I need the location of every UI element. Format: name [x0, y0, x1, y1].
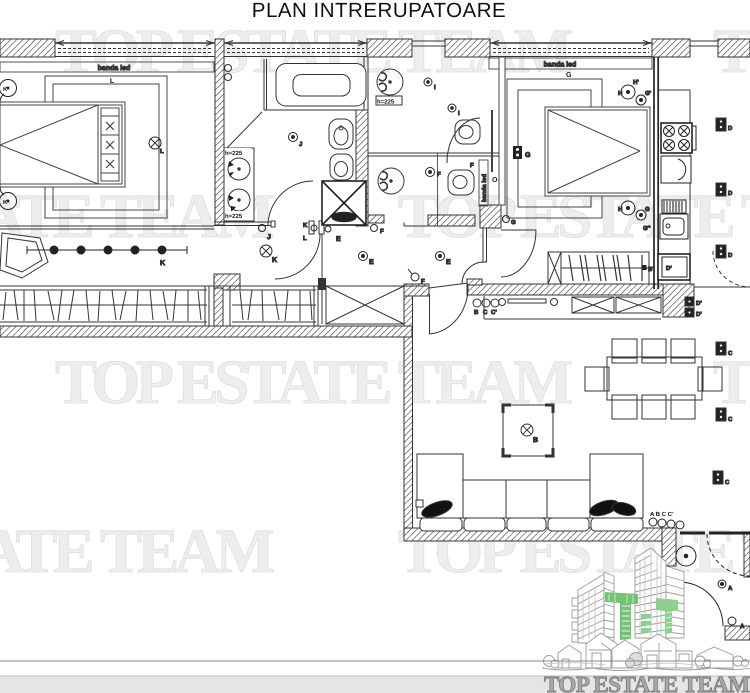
svg-text:D': D' [666, 265, 672, 272]
svg-text:banda led: banda led [481, 174, 488, 202]
svg-text:banda led: banda led [544, 61, 577, 69]
svg-text:A: A [728, 585, 733, 592]
svg-text:C: C [728, 350, 733, 357]
svg-text:O: O [492, 177, 498, 184]
svg-text:G: G [566, 72, 572, 79]
svg-text:H: H [618, 90, 622, 97]
svg-text:TOP ESTATE TEAM: TOP ESTATE TEAM [544, 672, 750, 693]
svg-text:J: J [267, 234, 271, 241]
svg-text:A B C C': A B C C' [650, 511, 674, 518]
svg-text:TOP ESTATE TEAM: TOP ESTATE TEAM [0, 516, 275, 586]
svg-text:F: F [470, 162, 474, 169]
svg-text:h=225: h=225 [225, 150, 243, 157]
svg-text:B': B' [648, 266, 654, 273]
svg-text:D': D' [696, 311, 702, 318]
svg-text:TOP ESTATE TEAM: TOP ESTATE TEAM [713, 347, 750, 417]
svg-text:K: K [3, 86, 8, 93]
svg-text:F: F [437, 171, 441, 178]
svg-text:E: E [446, 259, 451, 266]
svg-text:H': H' [633, 79, 639, 86]
svg-text:J: J [299, 141, 302, 148]
svg-text:G: G [645, 206, 650, 213]
svg-text:G: G [525, 152, 531, 159]
svg-text:E: E [336, 236, 341, 243]
svg-text:K: K [3, 199, 8, 206]
svg-text:TOP ESTATE TEAM: TOP ESTATE TEAM [55, 347, 573, 417]
svg-text:L: L [303, 235, 307, 242]
svg-text:G: G [511, 219, 516, 226]
svg-text:F: F [421, 278, 425, 285]
svg-text:K: K [272, 257, 277, 264]
svg-text:D: D [728, 190, 733, 197]
svg-text:B: B [474, 309, 479, 316]
svg-text:C: C [725, 479, 730, 486]
svg-text:L: L [160, 148, 164, 155]
svg-text:K: K [303, 222, 308, 229]
svg-text:banda led: banda led [98, 64, 131, 72]
svg-text:D: D [728, 125, 733, 132]
svg-text:F: F [380, 228, 384, 235]
svg-text:B: B [533, 437, 538, 444]
svg-text:h=225: h=225 [377, 99, 395, 106]
svg-text:h=225: h=225 [225, 213, 243, 220]
svg-text:H: H [618, 206, 622, 213]
svg-text:C: C [728, 416, 733, 423]
svg-text:G'': G'' [643, 225, 651, 232]
svg-text:A: A [740, 623, 745, 630]
svg-text:PLAN INTRERUPATOARE: PLAN INTRERUPATOARE [252, 0, 506, 22]
svg-text:K: K [160, 260, 165, 267]
svg-text:D': D' [696, 300, 702, 307]
svg-text:C': C' [491, 309, 497, 316]
svg-text:G': G' [645, 90, 652, 97]
svg-text:D: D [728, 252, 733, 259]
svg-text:L: L [110, 78, 115, 85]
svg-text:E: E [369, 259, 374, 266]
svg-text:C: C [483, 309, 488, 316]
